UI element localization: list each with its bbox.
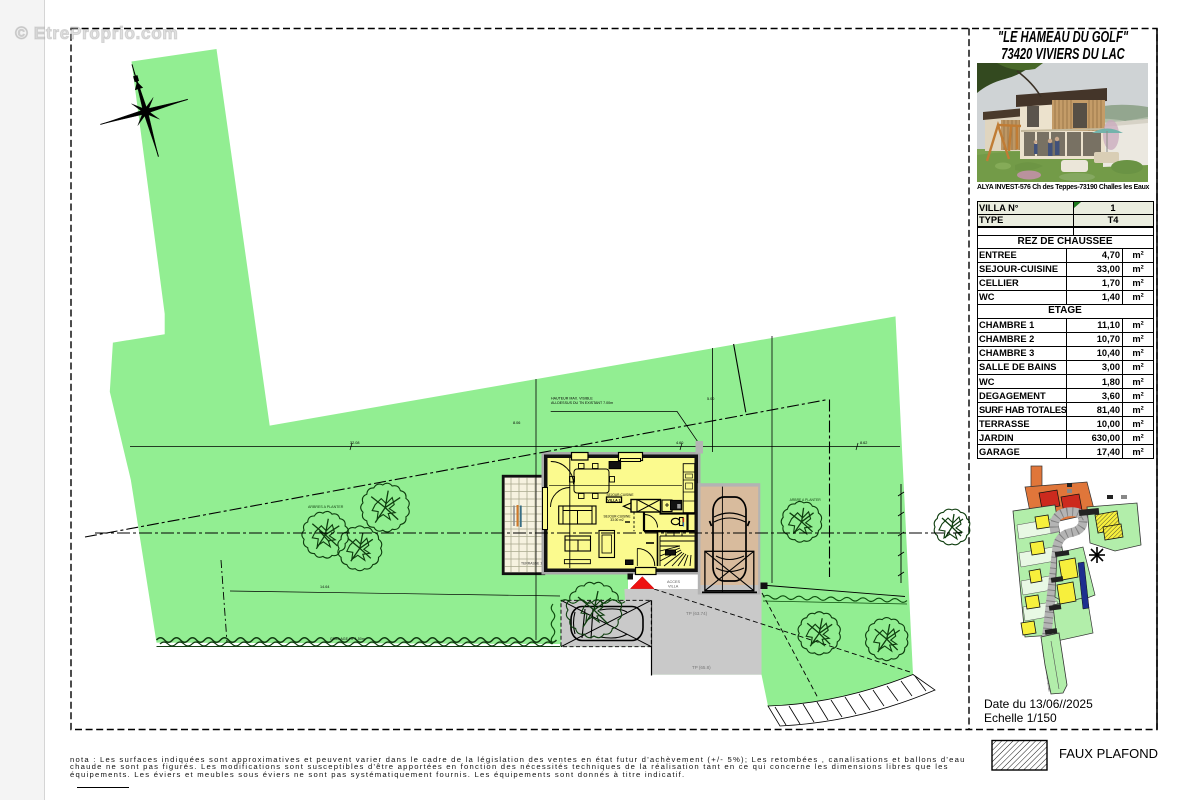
svg-text:TP (65.8): TP (65.8): [692, 665, 711, 670]
svg-text:14.64: 14.64: [320, 585, 330, 589]
svg-text:GRILLAGE HT 1.50m: GRILLAGE HT 1.50m: [330, 637, 365, 641]
svg-text:ACCES: ACCES: [667, 580, 681, 584]
svg-text:32.08: 32.08: [350, 441, 360, 445]
svg-text:33.00 m2: 33.00 m2: [610, 518, 624, 522]
svg-text:TP (63.74): TP (63.74): [686, 611, 708, 616]
svg-text:VILLA: VILLA: [668, 585, 679, 589]
svg-text:VILLA 1: VILLA 1: [607, 498, 620, 502]
svg-text:ARBRES A PLANTER: ARBRES A PLANTER: [308, 505, 344, 509]
svg-text:8.06: 8.06: [513, 421, 520, 425]
svg-text:AU-DESSUS DU TN EXISTANT 7.00m: AU-DESSUS DU TN EXISTANT 7.00m: [551, 401, 613, 405]
svg-text:4.60: 4.60: [676, 441, 683, 445]
svg-text:8.62: 8.62: [860, 441, 867, 445]
svg-text:ARBRE A PLANTER: ARBRE A PLANTER: [790, 498, 822, 502]
svg-text:SEJOUR-CUISINE: SEJOUR-CUISINE: [607, 493, 634, 497]
svg-text:5.00: 5.00: [707, 397, 714, 401]
